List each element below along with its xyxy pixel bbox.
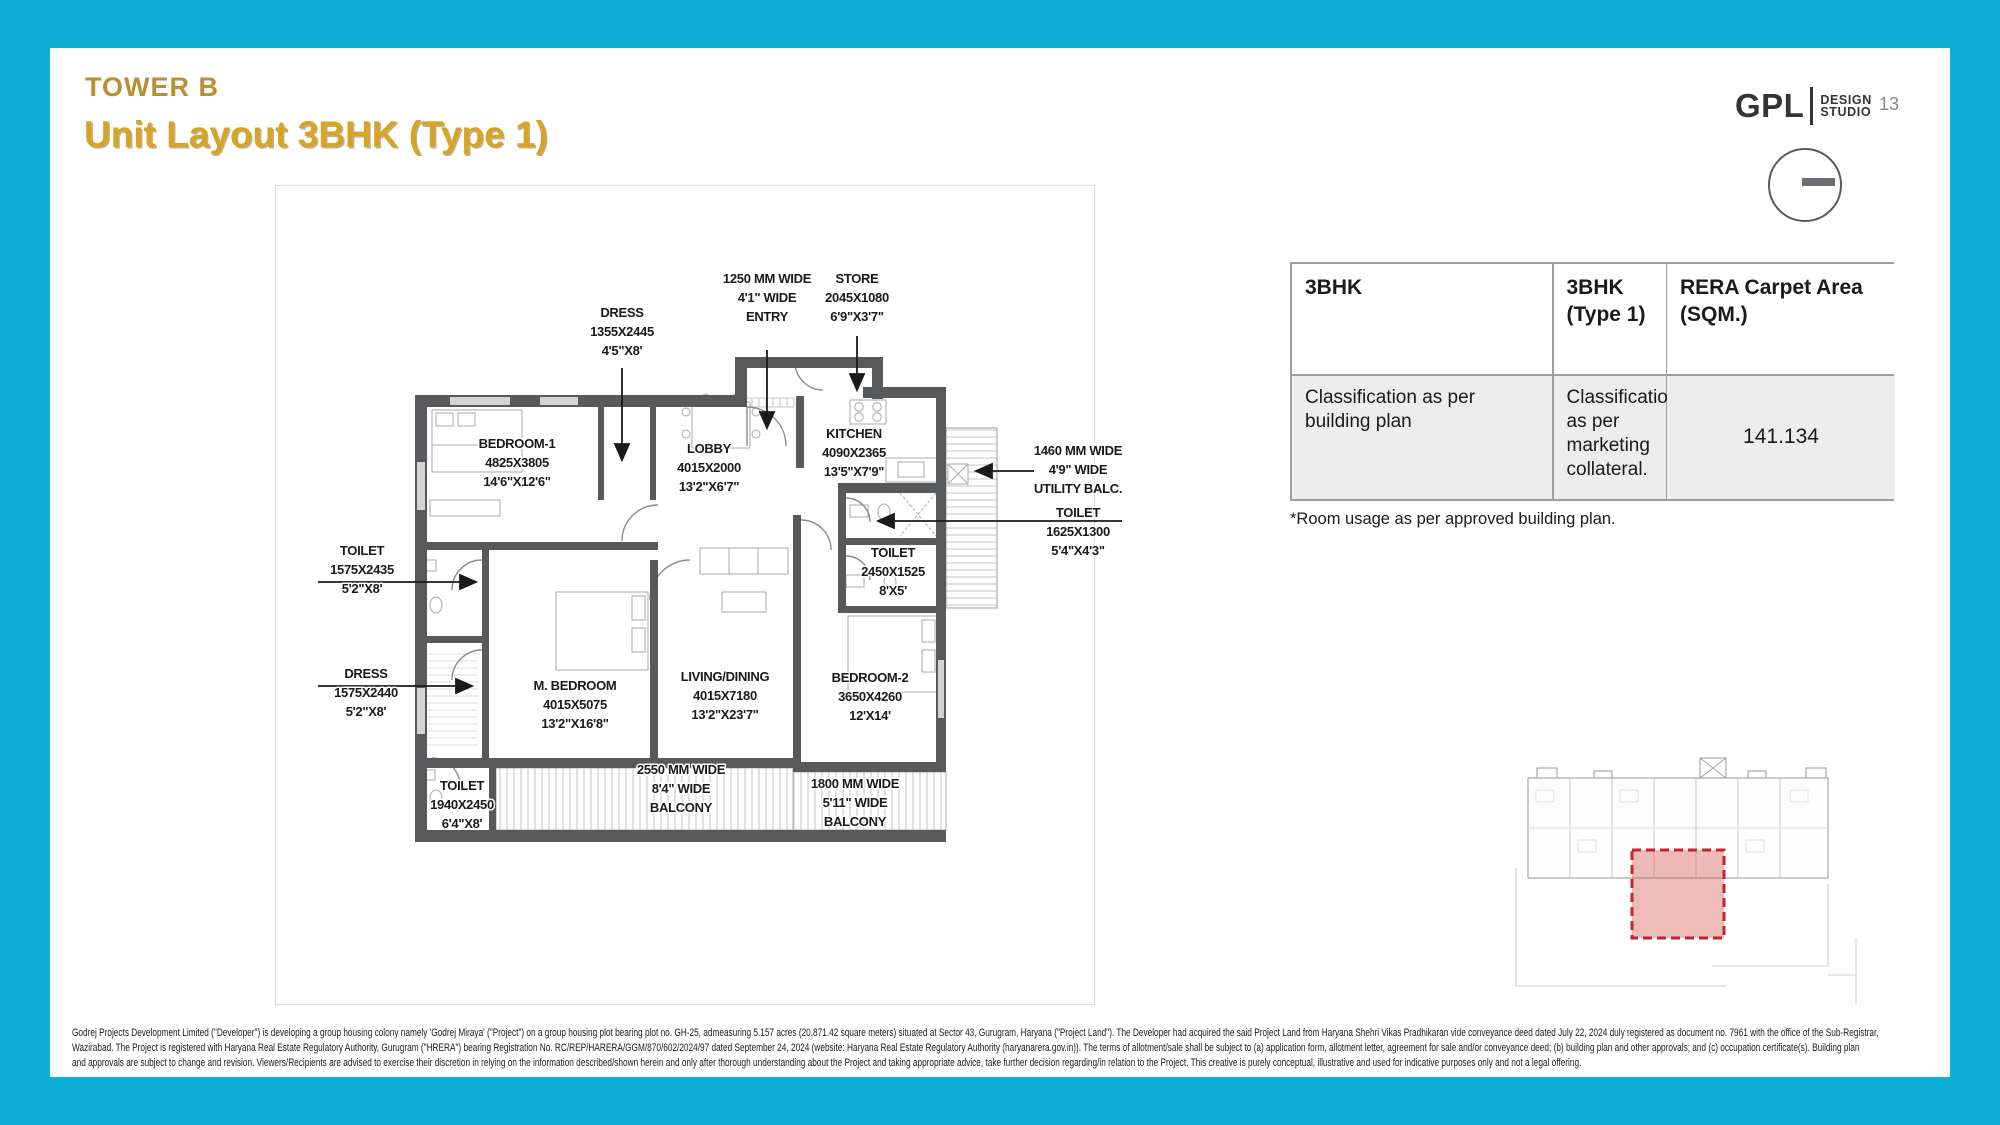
north-indicator-bar <box>1802 178 1835 186</box>
logo-subtitle: DESIGN STUDIO <box>1820 94 1872 118</box>
label-lobby: LOBBY4015X200013'2"X6'7" <box>677 441 741 494</box>
north-indicator-icon <box>1768 148 1842 222</box>
disclaimer: Godrej Projects Development Limited ("De… <box>72 1026 1952 1072</box>
label-toilet-1940: TOILET1940X24506'4"X8' <box>430 778 494 831</box>
tower-label: TOWER B <box>85 72 219 103</box>
table-header-3bhk-type1: 3BHK (Type 1) <box>1554 264 1666 374</box>
label-toilet-1625: TOILET1625X13005'4"X4'3" <box>1046 505 1110 558</box>
page-number: 13 <box>1879 94 1899 115</box>
label-entry: 1250 MM WIDE4'1" WIDEENTRY <box>723 271 812 324</box>
label-bedroom-1: BEDROOM-14825X380514'6"X12'6" <box>479 436 556 489</box>
label-living-dining: LIVING/DINING4015X718013'2"X23'7" <box>681 669 770 722</box>
slide: { "header": { "eyebrow": "TOWER B", "tit… <box>0 0 2000 1125</box>
logo-divider <box>1810 87 1813 125</box>
label-bedroom-2: BEDROOM-23650X426012'X14' <box>832 670 909 723</box>
table-header-rera-carpet-area: RERA Carpet Area (SQM.) <box>1667 264 1895 374</box>
disclaimer-line-2: Wazirabad. The Project is registered wit… <box>72 1041 1949 1056</box>
room-usage-footnote: *Room usage as per approved building pla… <box>1290 510 1616 529</box>
logo-sub2: STUDIO <box>1820 105 1871 119</box>
rera-table: 3BHK 3BHK (Type 1) RERA Carpet Area (SQM… <box>1290 262 1894 501</box>
page-title: Unit Layout 3BHK (Type 1) <box>84 114 548 156</box>
table-cell-carpet-area-value: 141.134 <box>1667 376 1895 499</box>
label-m-bedroom: M. BEDROOM4015X507513'2"X16'8" <box>534 678 617 731</box>
table-cell-building-plan: Classification as per building plan <box>1292 376 1552 499</box>
label-utility-balc: 1460 MM WIDE4'9" WIDEUTILITY BALC. <box>1034 443 1123 496</box>
table-cell-marketing-collateral: Classification as per marketing collater… <box>1554 376 1666 499</box>
label-dress-upper: DRESS1355X24454'5"X8' <box>590 305 654 358</box>
label-toilet-1575: TOILET1575X24355'2"X8' <box>330 543 394 596</box>
key-plan-highlighted-unit <box>1632 850 1724 938</box>
disclaimer-line-1: Godrej Projects Development Limited ("De… <box>72 1026 1949 1041</box>
label-toilet-2450: TOILET2450X15258'X5' <box>861 545 925 598</box>
label-dress-left: DRESS1575X24405'2"X8' <box>334 666 398 719</box>
gpl-design-studio-logo: GPL DESIGN STUDIO <box>1735 85 1872 127</box>
disclaimer-line-3: and approvals are subject to change and … <box>72 1056 1949 1071</box>
key-plan <box>1505 752 1865 1008</box>
label-kitchen: KITCHEN4090X236513'5"X7'9" <box>822 426 886 479</box>
table-header-3bhk: 3BHK <box>1292 264 1552 374</box>
label-store: STORE2045X10806'9"X3'7" <box>825 271 889 324</box>
floor-plan: DRESS1355X24454'5"X8'1250 MM WIDE4'1" WI… <box>305 265 1135 855</box>
logo-brand: GPL <box>1735 87 1804 125</box>
